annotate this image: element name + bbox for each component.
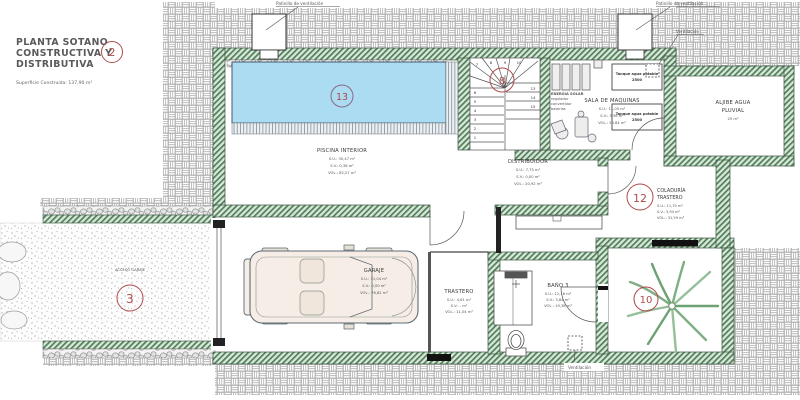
distribuidor-su: S.U.: 7,75 m²: [516, 168, 541, 172]
tank2-label: Tanque agua potable: [616, 112, 659, 116]
coladuria-name1: COLADURÍA: [657, 187, 686, 194]
bathroom-sink: [494, 271, 532, 325]
aljibe-capacity: 25 m³: [728, 117, 739, 121]
distribuidor-sv: S.V.: 0,00 m²: [516, 175, 540, 179]
room-coladuria-labels: 12 COLADURÍA TRASTERO S.U.: 11,70 m² S.V…: [627, 184, 686, 220]
trastero-su: S.U.: 4,61 m²: [447, 298, 472, 302]
tank1-capacity: 2500: [632, 78, 643, 82]
acceso-number: 3: [126, 292, 134, 306]
tread-15: 15: [531, 104, 536, 109]
car: [244, 245, 418, 329]
staircase: [470, 58, 540, 150]
garaje-su: S.U.: 31,04 m²: [361, 277, 388, 281]
tread-13: 13: [531, 86, 536, 91]
ventilacion-top-label: Ventilación: [676, 29, 699, 34]
floor-plan-page: PLANTA SOTANO CONSTRUCTIVA Y DISTRIBUTIV…: [0, 0, 800, 400]
garage-door: [211, 218, 227, 350]
tread-14: 14: [531, 95, 536, 100]
acceso-name: ACCESO GARAJE: [115, 268, 146, 272]
distribuidor-name: DISTRIBUIDOR: [508, 159, 548, 165]
room-bano3-labels: BAÑO 3 S.U.: 12,16 m² S.V.: 3,84 m² VOL.…: [544, 282, 572, 308]
coladuria-sv: S.V.: 3,94 m²: [657, 210, 681, 214]
pool-deck-east: [446, 62, 458, 134]
machinery: [551, 111, 596, 142]
piscina-su: S.U.: 30,47 m²: [329, 157, 356, 161]
coladuria-vol: VOL.: 31,59 m³: [657, 216, 685, 220]
trastero-vol: VOL.: 11,04 m³: [445, 310, 473, 314]
plan-title-line3: DISTRIBUTIVA: [16, 59, 94, 70]
room-aljibe-labels: ALJIBE AGUA PLUVIAL 25 m³: [715, 100, 750, 121]
trastero-name: TRASTERO: [443, 289, 473, 295]
energia-line2: regulador: [551, 97, 569, 101]
trastero-sv: S.V.: - m²: [451, 304, 468, 308]
solar-equipment: [552, 60, 602, 90]
coladuria-name2: TRASTERO: [656, 195, 683, 201]
stairs-number: 8: [499, 76, 505, 87]
energia-line3: convertidor: [551, 102, 572, 106]
room-trastero-labels: TRASTERO S.U.: 4,61 m² S.V.: - m² VOL.: …: [443, 289, 473, 314]
energia-line4: baterías: [551, 107, 566, 111]
bano3-name: BAÑO 3: [547, 282, 568, 289]
plan-title-line1: PLANTA SOTANO: [16, 37, 108, 48]
piscina-number: 13: [336, 92, 348, 103]
distribuidor-vol: VOL.: 20,92 m³: [514, 182, 542, 186]
piscina-vol: VOL.: 82,27 m³: [328, 171, 356, 175]
title-block: PLANTA SOTANO CONSTRUCTIVA Y DISTRIBUTIV…: [16, 37, 123, 86]
vent-grille-bottom: [568, 336, 582, 350]
built-area-note: Superficie Construida: 137,90 m²: [16, 80, 92, 86]
bano3-su: S.U.: 12,16 m²: [545, 292, 572, 296]
tread-10: 10: [517, 60, 522, 65]
sliding-door-leaf: [496, 207, 501, 253]
piscina-name: PISCINA INTERIOR: [317, 148, 367, 154]
garaje-sv: S.V.: 0,00 m²: [362, 284, 386, 288]
aljibe-name1: ALJIBE AGUA: [715, 100, 750, 106]
tank2-capacity: 2500: [632, 118, 643, 122]
garage-ramp: [0, 206, 215, 358]
bano3-vol: VOL.: 19,38 m³: [544, 304, 572, 308]
pool-deck-south: [232, 123, 446, 134]
sala-su: S.U.: 11,05 m²: [599, 107, 626, 111]
floorplan-svg: PLANTA SOTANO CONSTRUCTIVA Y DISTRIBUTIV…: [0, 0, 800, 400]
plan-title-line2: CONSTRUCTIVA Y: [16, 48, 112, 59]
patinillo-right-label: Patinillo de ventilación: [656, 1, 704, 6]
aljibe-name2: PLUVIAL: [722, 108, 744, 114]
tank1-label: Tanque agua potable: [616, 72, 659, 76]
plan-number: 2: [109, 46, 116, 59]
patinillo-left-label: Patinillo de ventilación: [276, 1, 324, 6]
garaje-name: GARAJE: [364, 268, 385, 274]
toilet: [506, 331, 526, 357]
garaje-vol: VOL.: 76,82 m³: [360, 291, 388, 295]
coladuria-su: S.U.: 11,70 m²: [657, 204, 683, 208]
wardrobe: [516, 216, 602, 229]
room-patio-labels: 10: [634, 287, 658, 311]
sala-name: SALA DE MAQUINAS: [584, 98, 639, 104]
energia-line1: ENERGIA SOLAR: [551, 92, 584, 96]
ventilacion-bottom-label: Ventilación: [568, 365, 591, 370]
room-distribuidor-labels: DISTRIBUIDOR S.U.: 7,75 m² S.V.: 0,00 m²…: [508, 159, 548, 186]
patio-number: 10: [640, 295, 653, 306]
trastero-thin-wall: [428, 252, 431, 352]
sala-vol: VOL.: 29,84 m³: [598, 121, 626, 125]
piscina-sv: S.V.: 0,36 m²: [330, 164, 354, 168]
palm-tree: [628, 262, 718, 352]
coladuria-number: 12: [633, 192, 647, 205]
bano3-sv: S.V.: 3,84 m²: [546, 298, 570, 302]
